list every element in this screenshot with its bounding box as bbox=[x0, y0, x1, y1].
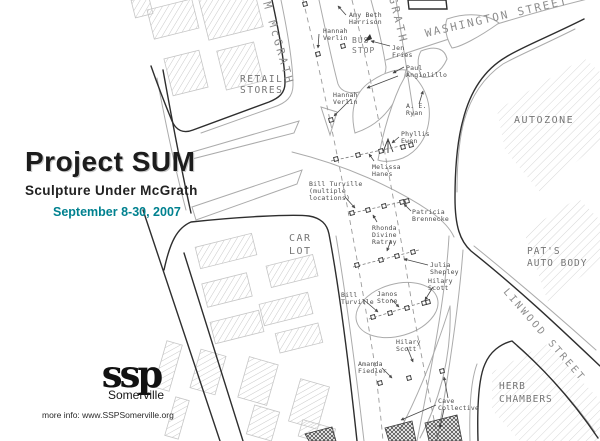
sculpture-location-marker bbox=[379, 149, 384, 154]
page-title: Project SUM bbox=[25, 146, 198, 178]
artist-label-cave-collective: CaveCollective bbox=[438, 397, 479, 412]
sculpture-location-marker bbox=[401, 145, 406, 150]
ssp-logo-text: ssp bbox=[98, 358, 164, 390]
traffic-island bbox=[189, 121, 299, 159]
artist-label-bill-turville-multiple-locations: Bill Turville(multiplelocations) bbox=[309, 180, 362, 202]
map-canvas: M McGRATHGRATHWASHINGTON STREETLINWOOD S… bbox=[0, 0, 600, 441]
artist-label-hannah-verlin: HannahVerlin bbox=[323, 27, 348, 42]
artist-label-amanda-fiedler: AmandaFiedler bbox=[358, 360, 387, 375]
ssp-logo: ssp Somerville bbox=[98, 358, 164, 402]
label-leader-arrow bbox=[404, 204, 411, 211]
herb-chambers-lot bbox=[492, 344, 600, 441]
underpass-structures bbox=[305, 415, 462, 441]
label-leader-arrow bbox=[338, 6, 346, 15]
sculpture-location-marker bbox=[329, 118, 334, 123]
sculpture-location-marker bbox=[440, 369, 445, 374]
street-label-washington-street: WASHINGTON STREET bbox=[424, 0, 570, 40]
event-dates: September 8-30, 2007 bbox=[53, 205, 198, 219]
sculpture-location-marker bbox=[379, 258, 384, 263]
title-block: Project SUM Sculpture Under McGrath Sept… bbox=[25, 146, 198, 219]
artist-label-hilary-scott: HilaryScott bbox=[428, 277, 453, 292]
sculpture-location-marker bbox=[355, 263, 360, 268]
sculpture-location-marker bbox=[405, 306, 410, 311]
label-leader-arrow bbox=[404, 259, 428, 265]
poster: M McGRATHGRATHWASHINGTON STREETLINWOOD S… bbox=[0, 0, 600, 441]
artist-label-rhonda-divine-ratray: RhondaDivineRatray bbox=[372, 224, 397, 246]
ssp-logo-subtext: Somerville bbox=[108, 388, 164, 402]
sculpture-location-marker bbox=[341, 44, 346, 49]
place-label-autozone: AUTOZONE bbox=[514, 115, 574, 126]
sculpture-chain-line bbox=[353, 250, 419, 267]
sculpture-location-marker bbox=[366, 208, 371, 213]
label-leader-arrow bbox=[318, 34, 319, 48]
artist-label-julia-shepley: JuliaShepley bbox=[430, 261, 459, 276]
sculpture-location-marker bbox=[411, 250, 416, 255]
artist-label-janos-stone: JanosStone bbox=[377, 290, 398, 305]
label-leader-arrow bbox=[373, 215, 377, 222]
sculpture-location-marker bbox=[388, 311, 393, 316]
label-leader-arrow bbox=[401, 405, 436, 420]
sculpture-location-marker bbox=[371, 315, 376, 320]
artist-label-hilary-scott: HilaryScott bbox=[396, 338, 421, 353]
sculpture-location-marker bbox=[334, 157, 339, 162]
sculpture-location-marker bbox=[356, 153, 361, 158]
sculpture-location-marker bbox=[400, 200, 405, 205]
artist-label-phyllis-ewen: PhyllisEwen bbox=[401, 130, 430, 145]
sculpture-location-marker bbox=[350, 211, 355, 216]
more-info-url: more info: www.SSPSomerville.org bbox=[42, 410, 174, 420]
sculpture-location-marker bbox=[407, 376, 412, 381]
artist-label-hannah-verlin: HannahVerlin bbox=[333, 91, 358, 106]
sculpture-location-marker bbox=[303, 2, 308, 7]
artist-label-bill-turville: BillTurville bbox=[341, 291, 374, 306]
artist-label-jen-fries: JenFries bbox=[392, 44, 413, 59]
subtitle: Sculpture Under McGrath bbox=[25, 183, 198, 198]
sculpture-location-marker bbox=[316, 52, 321, 57]
place-label-car-lot: CARLOT bbox=[289, 233, 312, 257]
street-label-grath: GRATH bbox=[386, 0, 410, 45]
artist-label-amy-beth-harrison: Amy BethHarrison bbox=[349, 11, 382, 26]
artist-label-melissa-hanes: MelissaHanes bbox=[372, 163, 401, 178]
sculpture-location-marker bbox=[378, 381, 383, 386]
traffic-island bbox=[192, 170, 302, 220]
sculpture-location-marker bbox=[395, 254, 400, 259]
building-outline bbox=[408, 0, 447, 9]
artist-label-patricia-brennecke: PatriciaBrennecke bbox=[412, 208, 449, 223]
sculpture-location-marker bbox=[405, 199, 410, 204]
sculpture-location-marker bbox=[426, 300, 431, 305]
label-leader-arrow bbox=[369, 154, 374, 161]
sculpture-location-marker bbox=[382, 204, 387, 209]
place-label-retail-stores: RETAILSTORES bbox=[240, 74, 283, 96]
